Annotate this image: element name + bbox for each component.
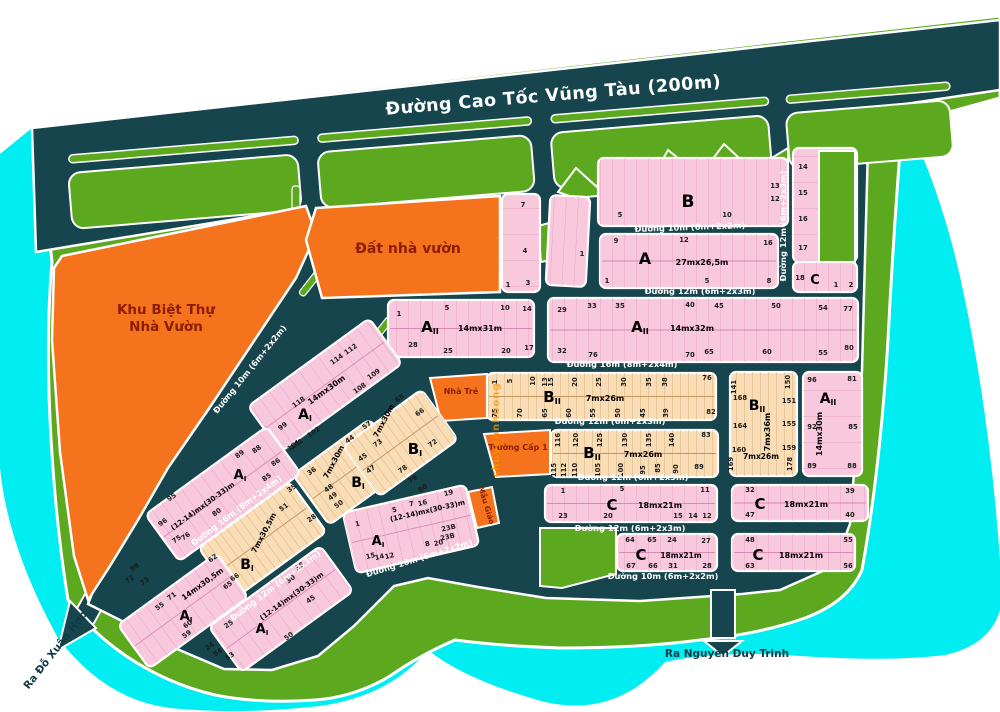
block-b2-col-dimension: 7mx36m: [763, 413, 772, 452]
block-a-dimension: 27mx26,5m: [676, 258, 729, 267]
plot-number: 5: [506, 378, 514, 383]
plot-number: 1: [580, 250, 585, 258]
plot-number: 125: [596, 433, 604, 447]
plot-number: 25: [595, 377, 603, 387]
plot-number: 77: [843, 305, 853, 313]
plot-number: 28: [702, 562, 712, 570]
plot-number: 35: [615, 302, 625, 310]
block-c-2l-label: C: [635, 546, 646, 564]
plot-number: 33: [587, 302, 597, 310]
plot-number: 15: [798, 189, 808, 197]
road-label: Đường 12m (6m+2x3m): [575, 523, 686, 533]
plot-number: 65: [541, 408, 549, 418]
plot-number: 10: [529, 376, 537, 386]
plot-number: 1: [397, 310, 402, 318]
plot-number: 8: [767, 277, 772, 285]
plot-number: 11: [700, 486, 710, 494]
plot-number: 12: [702, 512, 712, 520]
plot-number: 20: [603, 512, 613, 520]
plot-number: 32: [745, 486, 755, 494]
plot-number: 32: [557, 347, 567, 355]
plot-number: 5: [620, 485, 625, 493]
road-label: Đường 12m (6m+2x3m): [555, 416, 666, 426]
plot-number: 10: [722, 211, 732, 219]
plot-number: 35: [645, 377, 653, 387]
plot-number: 88: [847, 462, 857, 470]
plot-number: 80: [844, 344, 854, 352]
plot-number: 55: [843, 536, 853, 544]
plot-number: 66: [648, 562, 658, 570]
plot-number: 15: [547, 377, 555, 387]
block-b2-2-dimension: 7mx26m: [624, 450, 663, 459]
plot-number: 38: [661, 377, 669, 387]
plot-number: 29: [557, 306, 567, 314]
block-b2-col-dimension: 7mx26m: [743, 452, 779, 461]
plot-number: 5: [705, 277, 710, 285]
plot-number: 27: [701, 537, 711, 545]
plot-number: 60: [762, 348, 772, 356]
plot-number: 76: [588, 351, 598, 359]
map-stage: Đường Cao Tốc Vũng Tàu (200m) 1B5101312A…: [0, 0, 1000, 712]
plot-number: 120: [572, 433, 580, 447]
green-patch: [819, 151, 855, 262]
plot-number: 2: [849, 281, 854, 289]
block-c-1r-label: C: [754, 495, 765, 513]
zone-label-dat-nha-vuon: Đất nhà vườn: [355, 240, 461, 257]
plot-number: 17: [524, 344, 534, 352]
plot-number: 15: [673, 512, 683, 520]
plot-number: 140: [668, 433, 676, 447]
plot-number: 50: [771, 302, 781, 310]
plot-number: 28: [408, 341, 418, 349]
block-c-1r-dimension: 18mx21m: [784, 500, 828, 509]
plot-number: 1: [834, 281, 839, 289]
plot-number: 31: [668, 562, 678, 570]
plot-number: 10: [500, 304, 510, 312]
plot-number: 56: [843, 562, 853, 570]
plot-number: 1: [506, 281, 511, 289]
plot-number: 25: [443, 347, 453, 355]
plot-number: 24: [667, 536, 677, 544]
plot-number: 83: [701, 431, 711, 439]
plot-number: 82: [706, 408, 716, 416]
plot-number: 76: [702, 374, 712, 382]
plot-number: 92: [807, 423, 817, 431]
block-a2-left-dimension: 14mx31m: [458, 324, 502, 333]
plot-number: 168: [733, 394, 747, 402]
plot-number: 14: [798, 163, 808, 171]
site-plan-map: Đường Cao Tốc Vũng Tàu (200m) 1B5101312A…: [0, 0, 1000, 712]
block-b-label: B: [682, 192, 695, 212]
plot-number: 5: [618, 211, 623, 219]
wedge-b: [546, 195, 591, 287]
plot-number: 3: [526, 279, 531, 287]
plot-number: 135: [645, 433, 653, 447]
plot-number: 155: [782, 420, 796, 428]
plot-number: 1: [561, 487, 566, 495]
plot-number: 9: [614, 237, 619, 245]
plot-number: 47: [745, 511, 755, 519]
plot-number: 54: [818, 304, 828, 312]
plot-number: 1: [605, 277, 610, 285]
road-label: Đường 12m (6m+2x3m): [778, 170, 788, 281]
plot-number: 85: [848, 423, 858, 431]
block-b2-1-dimension: 7mx26m: [586, 394, 625, 403]
plot-number: 65: [647, 536, 657, 544]
plot-number: 159: [782, 444, 796, 452]
plot-number: 115: [550, 463, 558, 477]
plot-number: 169: [727, 457, 735, 471]
block-a2-right-dimension: 14mx32m: [670, 324, 714, 333]
wedge-b-lots: [546, 195, 591, 287]
zone-label-khu-biet-thu: Khu Biệt Thự: [117, 302, 215, 318]
zone-label-khu-biet-thu: Nhà Vườn: [129, 319, 203, 335]
plot-number: 112: [560, 463, 568, 477]
plot-number: 48: [745, 536, 755, 544]
road-label: Đường 16m (8m+2x4m): [567, 359, 678, 369]
plot-number: 64: [625, 536, 635, 544]
plot-number: 160: [732, 446, 746, 454]
plot-number: 39: [845, 487, 855, 495]
road-label: Đường 12m (6m+2x3m): [645, 286, 756, 296]
plot-number: 151: [782, 397, 796, 405]
plot-number: 14: [688, 512, 698, 520]
plot-number: 130: [621, 433, 629, 447]
plot-number: 20: [571, 377, 579, 387]
plot-number: 7: [521, 201, 526, 209]
plot-number: 5: [445, 304, 450, 312]
plot-number: 45: [714, 302, 724, 310]
plot-number: 55: [818, 349, 828, 357]
plot-number: 89: [694, 463, 704, 471]
plot-number: 12: [679, 236, 689, 244]
plot-number: 70: [685, 351, 695, 359]
plot-number: 96: [807, 376, 817, 384]
watermark-text: chuyennhuong: [491, 382, 502, 477]
plot-number: 30: [620, 377, 628, 387]
plot-number: 20: [501, 347, 511, 355]
plot-number: 70: [516, 408, 524, 418]
plot-number: 178: [786, 457, 794, 471]
plot-number: 40: [845, 511, 855, 519]
exit-label: Ra Nguyễn Duy Trinh: [665, 647, 789, 660]
plot-number: 141: [730, 380, 738, 394]
plot-number: 150: [784, 375, 792, 389]
road-label: Đường 10m (6m+2x2m): [608, 571, 719, 581]
plot-number: 16: [763, 239, 773, 247]
block-c-2r-dimension: 18mx21m: [779, 551, 823, 560]
block-c-1l-dimension: 18mx21m: [638, 501, 682, 510]
zone-label-nha-tre: Nhà Trẻ: [444, 386, 479, 396]
plot-number: 89: [807, 462, 817, 470]
plot-number: 65: [704, 348, 714, 356]
plot-number: 18: [795, 274, 805, 282]
block-a-label: A: [639, 249, 652, 268]
block-c-2l-dimension: 18mx21m: [660, 551, 702, 560]
plot-number: 116: [554, 433, 562, 447]
plot-number: 23: [558, 512, 568, 520]
plot-number: 164: [733, 422, 747, 430]
block-c-top-right-label: C: [810, 273, 820, 288]
plot-number: 40: [685, 301, 695, 309]
plot-number: 14: [522, 305, 532, 313]
plot-number: 63: [745, 562, 755, 570]
plot-number: 4: [523, 247, 528, 255]
block-a2-col-dimension: 14mx30m: [815, 412, 824, 456]
plot-number: 17: [798, 244, 808, 252]
road-label: Đường 12m (6m+2x3m): [578, 472, 689, 482]
plot-number: 81: [847, 375, 857, 383]
plot-number: 16: [798, 215, 808, 223]
plot-number: 67: [626, 562, 636, 570]
